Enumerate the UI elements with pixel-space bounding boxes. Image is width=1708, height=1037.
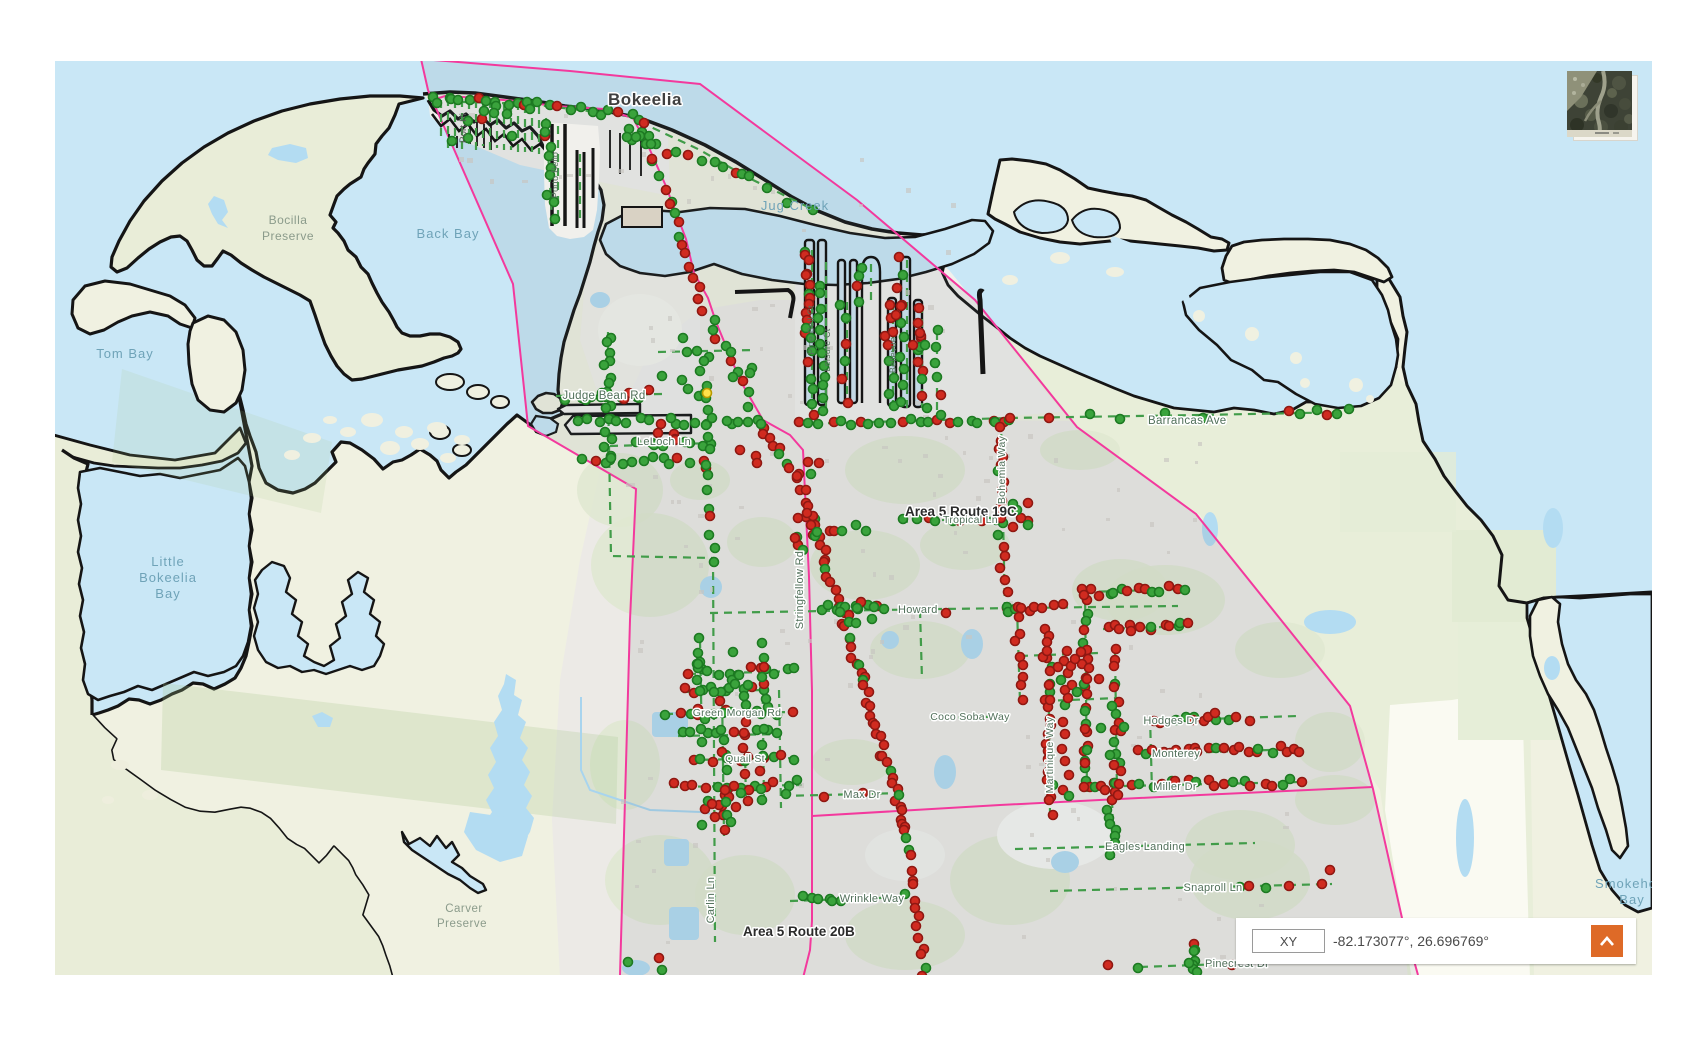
svg-text:Tropical Ln: Tropical Ln [943,514,998,526]
svg-text:LeLoch Ln: LeLoch Ln [637,436,691,448]
svg-text:Coco Soba Way: Coco Soba Way [930,711,1010,723]
svg-text:Stringfellow Rd: Stringfellow Rd [794,551,806,629]
svg-text:Quail St: Quail St [725,753,765,765]
svg-text:Bellevue: Bellevue [888,337,898,373]
svg-text:Leisure Ct: Leisure Ct [822,328,832,371]
svg-text:Pine Bell Ct: Pine Bell Ct [806,305,816,355]
svg-text:Tom Bay: Tom Bay [96,346,154,361]
svg-text:Preserve: Preserve [262,229,314,243]
svg-text:Barrancas Ave: Barrancas Ave [1148,415,1226,427]
svg-text:Howard: Howard [898,604,938,616]
svg-text:Max Dr: Max Dr [843,789,880,801]
svg-text:Green Morgan Rd: Green Morgan Rd [693,707,782,719]
svg-text:Snaproll Ln: Snaproll Ln [1184,882,1243,894]
svg-text:Bokeelia: Bokeelia [139,570,197,585]
svg-text:Bocilla: Bocilla [269,213,308,227]
svg-text:Judge Bean Rd: Judge Bean Rd [562,390,645,402]
svg-text:Jug Creek: Jug Creek [761,198,829,213]
svg-text:Monterey: Monterey [1152,748,1200,760]
svg-text:Porto Bello: Porto Bello [550,152,560,198]
svg-text:Bohemia Way: Bohemia Way [996,435,1008,504]
svg-text:Back Bay: Back Bay [417,226,480,241]
svg-text:Martinique Way: Martinique Way [1044,716,1056,793]
svg-text:Bay: Bay [155,586,180,601]
svg-text:Wrinkle Way: Wrinkle Way [840,893,905,905]
svg-text:Area 5 Route 20B: Area 5 Route 20B [743,924,855,939]
svg-text:Hodges Dr: Hodges Dr [1143,715,1198,727]
svg-text:Carlin Ln: Carlin Ln [705,877,717,924]
svg-text:Bay: Bay [1619,892,1644,907]
svg-text:Preserve: Preserve [437,918,487,930]
svg-text:Bokeelia: Bokeelia [608,90,682,109]
svg-text:Carver: Carver [445,903,483,915]
svg-text:Smokehouse: Smokehouse [1595,876,1652,891]
svg-text:Eagles Landing: Eagles Landing [1105,841,1185,853]
svg-text:Little: Little [151,554,184,569]
svg-text:Port Pi: Port Pi [458,113,469,143]
svg-text:Miller Dr: Miller Dr [1153,781,1197,793]
